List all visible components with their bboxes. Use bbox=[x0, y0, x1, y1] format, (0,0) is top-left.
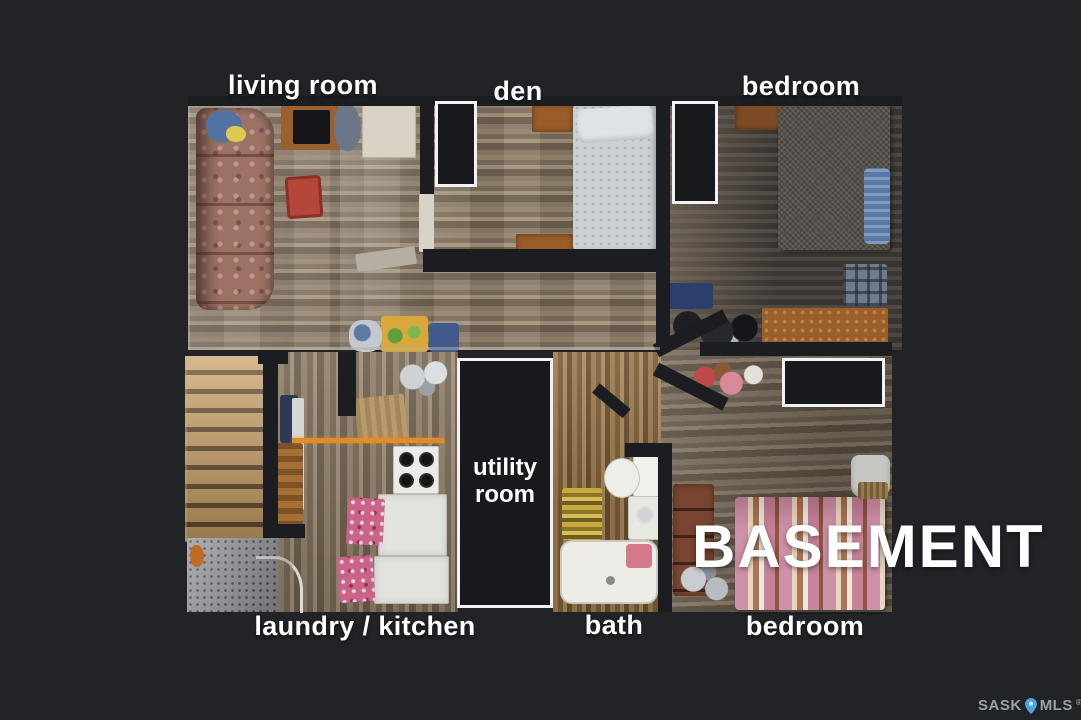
bedroom-bottom-label: bedroom bbox=[746, 611, 864, 642]
den-label: den bbox=[493, 76, 542, 107]
kitchen-counter bbox=[354, 394, 408, 443]
bedroom-top-blue-item bbox=[666, 283, 713, 309]
stove-burner bbox=[399, 473, 414, 488]
wall-den-bottom bbox=[423, 249, 657, 272]
dryer bbox=[374, 556, 449, 604]
tv-screen bbox=[293, 110, 330, 144]
stove-burner bbox=[399, 452, 414, 467]
toilet-bowl bbox=[604, 458, 640, 498]
privacy-box-bedroom-mid bbox=[782, 358, 885, 407]
bath-label: bath bbox=[585, 610, 644, 641]
wall-stairs-foot bbox=[263, 524, 305, 538]
bath-rug bbox=[562, 488, 602, 540]
beige-cabinet bbox=[362, 103, 416, 158]
plaid-blanket bbox=[843, 264, 887, 306]
privacy-box-den bbox=[435, 101, 477, 187]
registered-mark: ® bbox=[1076, 698, 1081, 707]
wall-bath-right bbox=[658, 443, 672, 612]
privacy-box-bedroom-top bbox=[672, 101, 718, 204]
stove bbox=[393, 446, 439, 494]
floor-title: BASEMENT bbox=[692, 512, 1045, 581]
wall-bedrooms-divider bbox=[700, 342, 892, 356]
counter-edge bbox=[292, 438, 444, 443]
landing-orange-item bbox=[190, 545, 204, 567]
bedroom-top-label: bedroom bbox=[742, 71, 860, 102]
wall-center-vertical bbox=[656, 98, 670, 350]
kitchen-sink-area bbox=[395, 356, 453, 398]
kitchen-copper-items bbox=[275, 443, 303, 529]
bedroom-top-desk bbox=[762, 308, 888, 344]
hall-separator-line bbox=[188, 347, 660, 350]
blue-bags bbox=[334, 104, 361, 151]
wall-stairs-kitchen bbox=[263, 356, 278, 538]
bedroom-top-blue-pillow bbox=[864, 168, 890, 244]
utility-room-box: utility room bbox=[457, 358, 553, 608]
laundry-kitchen-label: laundry / kitchen bbox=[254, 611, 475, 642]
staircase bbox=[185, 356, 263, 542]
pink-towel bbox=[626, 544, 652, 568]
wall-kitchen-stub bbox=[338, 352, 356, 416]
stove-burner bbox=[419, 452, 434, 467]
brand-logo: SASK MLS ® bbox=[978, 697, 1081, 714]
living-room-label: living room bbox=[228, 70, 378, 101]
basement-floorplan-image: utility room living room den bedroom lau… bbox=[0, 0, 1081, 720]
den-bed-pillow bbox=[576, 104, 654, 143]
sofa-clutter-yellow bbox=[226, 126, 246, 142]
wall-bath-top-stub bbox=[625, 443, 660, 457]
pink-rug-upper bbox=[346, 497, 385, 546]
stove-burner bbox=[419, 473, 434, 488]
wall-livingroom-stub bbox=[258, 350, 288, 364]
map-pin-icon bbox=[1025, 698, 1037, 714]
wicker-basket bbox=[858, 482, 888, 499]
brand-prefix: SASK bbox=[978, 697, 1022, 714]
pink-rug-lower bbox=[336, 555, 375, 603]
white-shelf bbox=[419, 194, 434, 252]
den-cardboard-box bbox=[532, 104, 573, 132]
wall-den-left bbox=[420, 98, 434, 194]
washer bbox=[378, 494, 447, 556]
bathroom-sink bbox=[628, 496, 662, 540]
red-ottoman bbox=[285, 175, 324, 219]
utility-room-label: utility room bbox=[464, 455, 546, 509]
brand-suffix: MLS bbox=[1040, 697, 1073, 714]
